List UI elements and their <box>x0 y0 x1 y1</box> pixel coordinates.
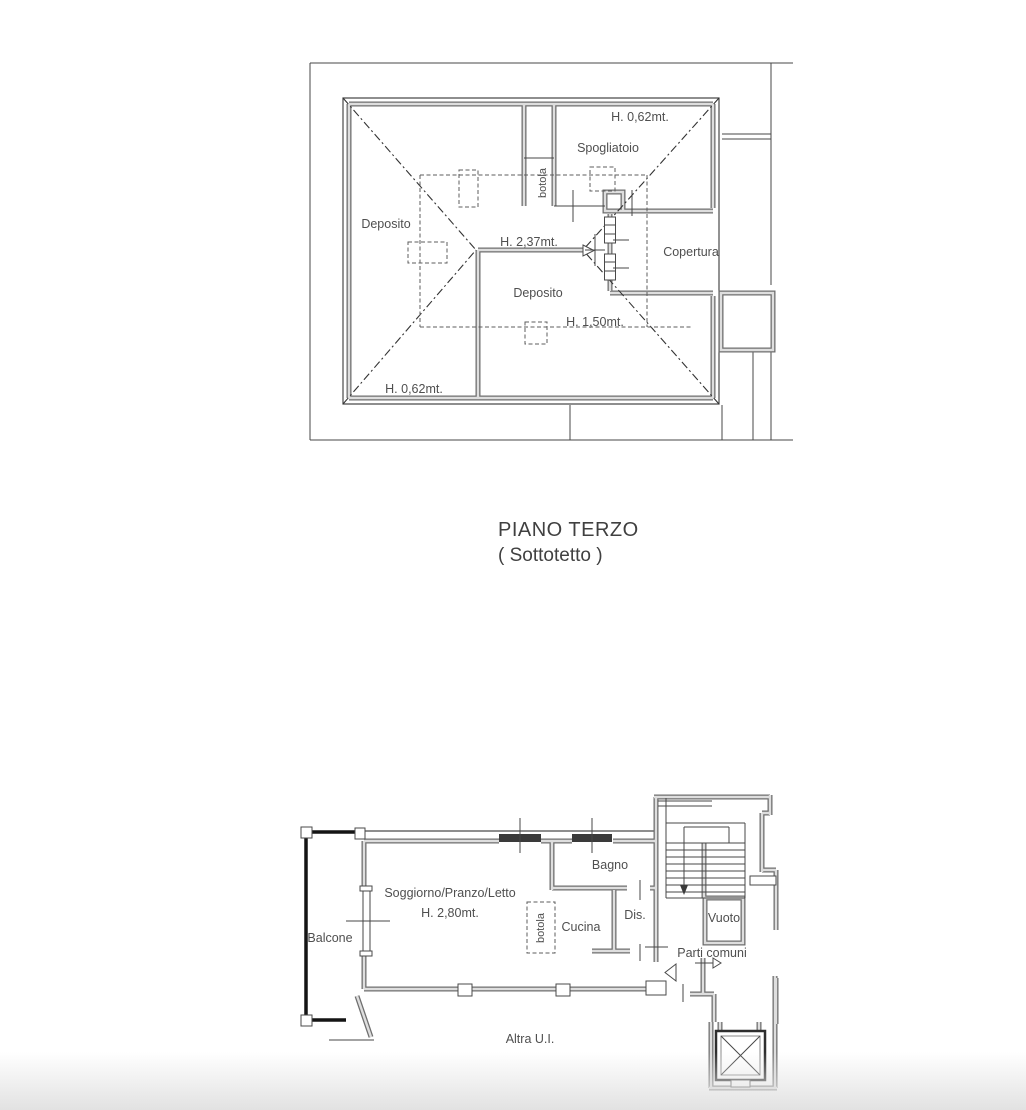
label-height-bottom: H. 0,62mt. <box>385 382 443 396</box>
label-deposito-left: Deposito <box>361 217 410 231</box>
balcony-railing <box>301 827 365 1026</box>
label-botola-apartment: botola <box>535 912 547 943</box>
stair-down-arrow-icon <box>680 885 688 895</box>
label-height-soggiorno: H. 2,80mt. <box>421 906 479 920</box>
apartment-walls <box>357 795 777 1088</box>
floor-plan-sheet: H. 0,62mt. Spogliatoio botola Deposito H… <box>0 0 1026 1110</box>
piano-terzo-plan: H. 0,62mt. Spogliatoio botola Deposito H… <box>310 63 793 440</box>
wall-column <box>556 984 570 996</box>
label-copertura: Copertura <box>663 245 719 259</box>
label-height-mid: H. 1,50mt. <box>566 315 624 329</box>
label-balcone: Balcone <box>307 931 352 945</box>
page-title: PIANO TERZO <box>498 519 639 541</box>
landing-sill <box>750 876 776 885</box>
elevator-icon <box>716 1031 765 1087</box>
wall-column <box>646 981 666 995</box>
apartment-plan: Balcone Soggiorno/Pranzo/Letto H. 2,80mt… <box>301 795 777 1088</box>
label-parti-comuni: Parti comuni <box>677 946 746 960</box>
label-deposito-center: Deposito <box>513 286 562 300</box>
door-leaf-icon <box>665 964 676 981</box>
label-vuoto: Vuoto <box>708 911 740 925</box>
label-spogliatoio: Spogliatoio <box>577 141 639 155</box>
wall-column <box>458 984 472 996</box>
plan-title: PIANO TERZO ( Sottotetto ) <box>498 519 639 566</box>
label-cucina: Cucina <box>562 920 601 934</box>
label-altra-ui: Altra U.I. <box>506 1032 555 1046</box>
label-height-top: H. 0,62mt. <box>611 110 669 124</box>
label-dis: Dis. <box>624 908 646 922</box>
floor-plan-drawing: H. 0,62mt. Spogliatoio botola Deposito H… <box>0 0 1026 1110</box>
label-height-ridge: H. 2,37mt. <box>500 235 558 249</box>
label-bagno: Bagno <box>592 858 628 872</box>
label-botola-attic: botola <box>537 167 549 198</box>
label-soggiorno: Soggiorno/Pranzo/Letto <box>384 886 515 900</box>
page-subtitle: ( Sottotetto ) <box>498 545 603 566</box>
